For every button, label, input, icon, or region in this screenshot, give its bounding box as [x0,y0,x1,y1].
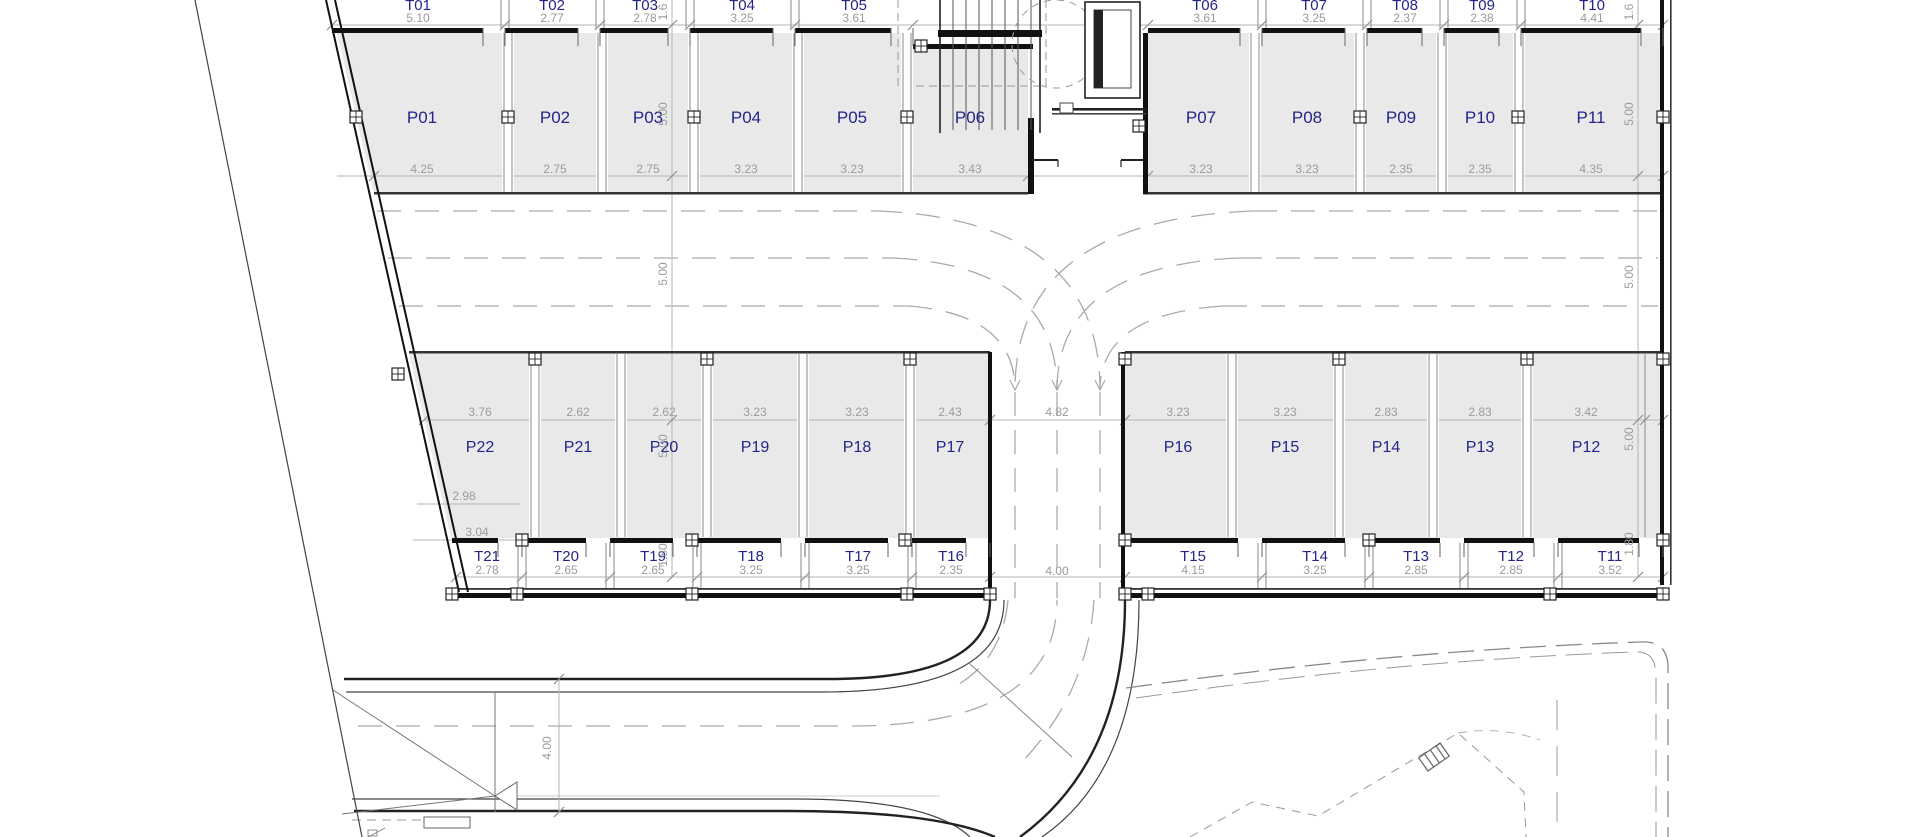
site-boundary-line [195,0,362,837]
p22-depth-dim-b: 3.04 [465,525,489,539]
unit-dim-P21: 2.62 [566,405,590,419]
unit-dim-P12: 3.42 [1574,405,1598,419]
unit-dim-T03: 2.78 [633,11,657,25]
unit-dim-P01: 4.25 [410,162,434,176]
unit-dim-T12: 2.85 [1499,563,1523,577]
unit-label-P11: P11 [1577,108,1606,127]
grate-icon [1419,743,1449,771]
right-dim-label: 5.00 [1622,102,1636,126]
unit-dim-T09: 2.38 [1470,11,1494,25]
lane-width-dim: 4.82 [1045,405,1069,419]
unit-dim-P19: 3.23 [743,405,767,419]
unit-dim-T10: 4.41 [1580,11,1604,25]
unit-label-P17: P17 [936,439,965,456]
unit-dim-P15: 3.23 [1273,405,1297,419]
road-edges [344,600,1139,837]
unit-label-P12: P12 [1572,439,1601,456]
road-width-dim: 4.00 [540,736,554,760]
unit-dim-P02: 2.75 [543,162,567,176]
unit-dim-T17: 3.25 [846,563,870,577]
unit-label-P19: P19 [741,439,770,456]
unit-dim-T15: 4.15 [1181,563,1205,577]
unit-dim-P11: 4.35 [1579,162,1603,176]
unit-dim-T13: 2.85 [1404,563,1428,577]
unit-dim-T02: 2.77 [540,11,564,25]
unit-dim-T14: 3.25 [1303,563,1327,577]
unit-label-P09: P09 [1386,108,1416,127]
unit-label-P13: P13 [1466,439,1495,456]
unit-dim-P06: 3.43 [958,162,982,176]
unit-label-P01: P01 [407,108,437,127]
p22-depth-dim-a: 2.98 [452,489,476,503]
unit-dim-P22: 3.76 [468,405,492,419]
ramp-width-dim: 4.00 [1045,564,1069,578]
floor-plan-canvas: 4.82 4.00 4.00 2.98 3.04 T015.10T022.77T… [0,0,1920,837]
unit-label-P07: P07 [1186,108,1216,127]
unit-dim-P13: 2.83 [1468,405,1492,419]
unit-dim-T07: 3.25 [1302,11,1326,25]
right-dim-label: 5.00 [1622,427,1636,451]
unit-dim-T05: 3.61 [842,11,866,25]
unit-label-P08: P08 [1292,108,1322,127]
unit-label-P05: P05 [837,108,867,127]
unit-dim-P10: 2.35 [1468,162,1492,176]
unit-dim-P16: 3.23 [1166,405,1190,419]
unit-dim-P04: 3.23 [734,162,758,176]
left-dim-label: 1.80 [656,543,670,567]
unit-dim-P08: 3.23 [1295,162,1319,176]
unit-dim-T20: 2.65 [554,563,578,577]
unit-label-P14: P14 [1372,439,1401,456]
unit-label-P10: P10 [1465,108,1495,127]
unit-dim-T04: 3.25 [730,11,754,25]
left-dim-label: 5.00 [656,102,670,126]
unit-dim-P09: 2.35 [1389,162,1413,176]
unit-label-P18: P18 [843,439,872,456]
unit-label-P22: P22 [466,439,495,456]
right-dim-label: 1.80 [1622,532,1636,556]
unit-dim-T21: 2.78 [475,563,499,577]
parcel-dashed-boundary [1126,642,1668,837]
unit-dim-T06: 3.61 [1193,11,1217,25]
right-dim-label: 1.6 [1622,3,1636,20]
unit-dim-T18: 3.25 [739,563,763,577]
unit-label-P04: P04 [731,108,761,127]
unit-label-P02: P02 [540,108,570,127]
unit-label-P06: P06 [955,108,985,127]
left-dim-label: 1.6 [656,3,670,20]
floor-plan: 4.82 4.00 4.00 2.98 3.04 T015.10T022.77T… [0,0,1920,837]
unit-dim-T01: 5.10 [406,11,430,25]
unit-dim-P20: 2.62 [652,405,676,419]
left-dim-label: 5.00 [656,262,670,286]
unit-dim-T08: 2.37 [1393,11,1417,25]
unit-dim-P17: 2.43 [938,405,962,419]
unit-dim-P05: 3.23 [840,162,864,176]
unit-dim-T11: 3.52 [1598,563,1622,577]
unit-label-P16: P16 [1164,439,1193,456]
unit-dim-P03: 2.75 [636,162,660,176]
unit-label-P21: P21 [564,439,593,456]
unit-dim-P07: 3.23 [1189,162,1213,176]
left-dim-label: 5.00 [656,434,670,458]
unit-label-P15: P15 [1271,439,1300,456]
unit-dim-P18: 3.23 [845,405,869,419]
right-dim-label: 5.00 [1622,265,1636,289]
unit-dim-T16: 2.35 [939,563,963,577]
unit-dim-P14: 2.83 [1374,405,1398,419]
